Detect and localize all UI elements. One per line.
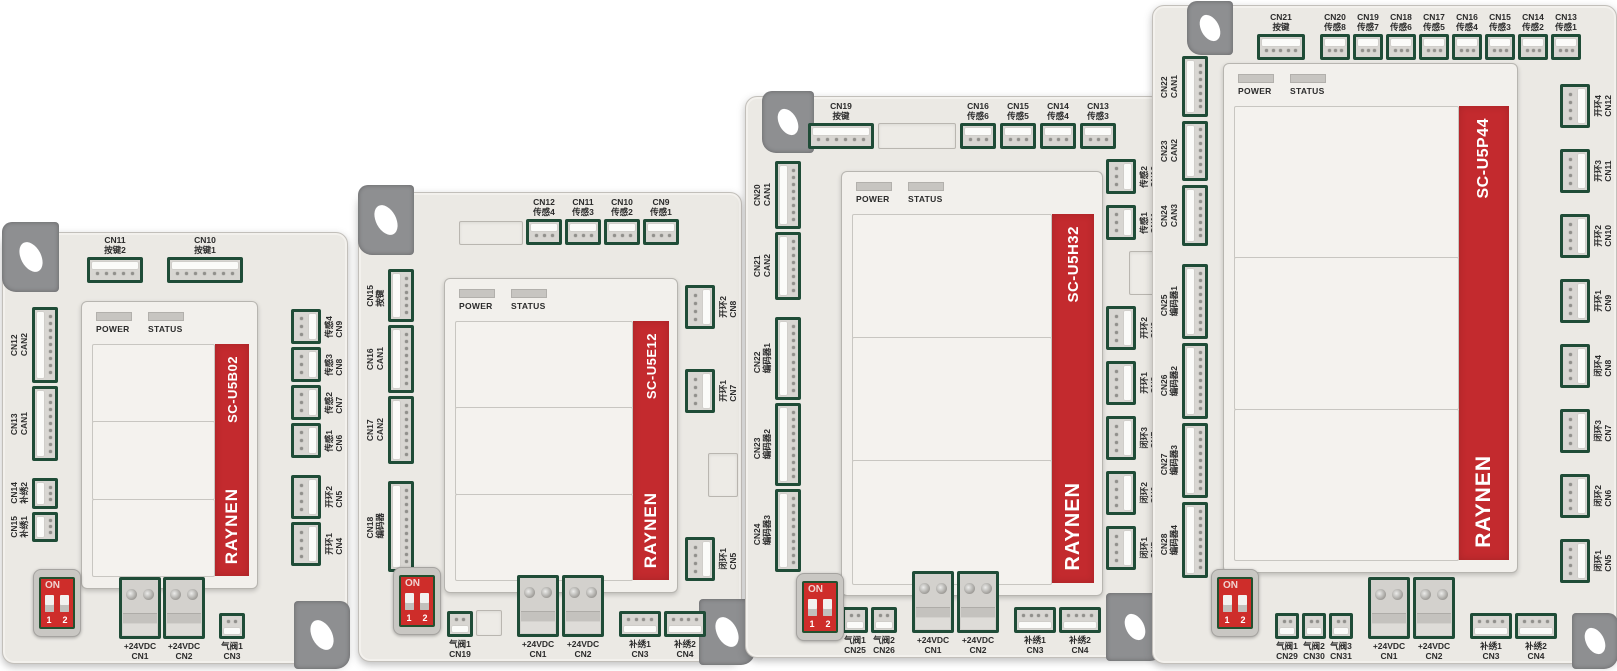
cover-section bbox=[92, 499, 215, 578]
pin-row bbox=[1020, 611, 1050, 620]
connector-id: CN26 bbox=[1159, 366, 1169, 396]
connector-label: CN18传感6 bbox=[1390, 12, 1412, 32]
connector-label: +24VDC bbox=[168, 641, 200, 651]
connector-id: CN19 bbox=[830, 101, 852, 111]
connector-id: CN27 bbox=[1159, 445, 1169, 475]
connector-key-strip bbox=[1358, 39, 1378, 46]
mounting-tab-top-left bbox=[358, 185, 414, 255]
connector-CN9 bbox=[643, 219, 679, 245]
pin-row bbox=[1425, 46, 1443, 55]
pin-row bbox=[297, 391, 306, 414]
connector-item-CN9: 开环2CN9 bbox=[1106, 306, 1159, 350]
dip-label-1: 1 bbox=[406, 614, 411, 623]
connector-id: CN8 bbox=[1603, 355, 1613, 377]
unpopulated-slot bbox=[878, 123, 956, 149]
cover-sections bbox=[1234, 106, 1459, 560]
connector-item-CN10: CN10传感2 bbox=[604, 197, 640, 245]
connector-id: CN2 bbox=[168, 651, 200, 661]
connector-key-strip bbox=[1187, 61, 1194, 112]
pin-row bbox=[1566, 155, 1575, 187]
status-led-label: STATUS bbox=[511, 301, 546, 311]
connector-label: 传感4CN9 bbox=[324, 316, 344, 338]
connector-CN7 bbox=[1106, 416, 1136, 460]
connector-id: CN4 bbox=[1069, 645, 1091, 655]
dip-label-2: 2 bbox=[63, 616, 68, 625]
connector-label: 传感3CN8 bbox=[324, 354, 344, 376]
connector-label: CN19传感7 bbox=[1357, 12, 1379, 32]
model-name: SC-U5E12 bbox=[644, 333, 659, 399]
product-lineup: POWERSTATUSSC-U5B02RAYNENCN11按键2CN10按键1C… bbox=[0, 0, 1617, 671]
cover-panel: POWERSTATUSSC-U5P44RAYNEN bbox=[1223, 63, 1518, 573]
connector-CN8 bbox=[291, 347, 321, 382]
mounting-hole bbox=[1120, 610, 1149, 643]
brand-logo: RAYNEN bbox=[1472, 455, 1496, 548]
connector-label: CN11按键2 bbox=[104, 235, 126, 255]
mounting-hole bbox=[1195, 11, 1224, 44]
pin-row bbox=[1196, 508, 1205, 572]
connector-key-strip bbox=[393, 486, 400, 567]
connector-label: 传感2 bbox=[611, 207, 633, 217]
connector-label: 开环1 bbox=[718, 380, 728, 402]
controller-board-sc-u5b02: POWERSTATUSSC-U5B02RAYNENCN11按键2CN10按键1C… bbox=[2, 232, 348, 664]
model-name: SC-U5P44 bbox=[1475, 118, 1493, 198]
connector-label: 编码器1 bbox=[1169, 286, 1179, 316]
connector-key-strip bbox=[1391, 39, 1411, 46]
connector-id: CN22 bbox=[752, 343, 762, 373]
connector-CN2-terminal bbox=[163, 577, 205, 639]
connector-label: 编码器 bbox=[375, 513, 385, 539]
status-led-group: POWERSTATUS bbox=[1238, 74, 1326, 96]
connector-label: 开环3CN11 bbox=[1593, 160, 1613, 182]
connector-item-CN8: 开环1CN8 bbox=[1106, 361, 1159, 405]
connector-key-strip bbox=[1187, 269, 1194, 335]
connector-label: CN14传感2 bbox=[1522, 12, 1544, 32]
connector-CN17 bbox=[388, 396, 414, 464]
connector-CN7 bbox=[685, 369, 715, 413]
bottom-connector-zone: 气阀1CN29气阀2CN30气阀3CN31+24VDCCN1+24VDCCN2补… bbox=[1275, 577, 1557, 661]
connector-item-CN3: 补绣1CN3 bbox=[1470, 613, 1512, 661]
bottom-connector-zone: +24VDCCN1+24VDCCN2气阀1CN3 bbox=[119, 577, 245, 661]
connector-label: CN13传感3 bbox=[1087, 101, 1109, 121]
connector-item-CN3: 气阀1CN3 bbox=[219, 613, 245, 661]
pin-row bbox=[297, 315, 306, 338]
bottom-connector-zone: 气阀1CN19+24VDCCN1+24VDCCN2补绣1CN3补绣2CN4 bbox=[447, 575, 706, 659]
connector-item-CN8: 开环2CN8 bbox=[685, 285, 738, 329]
connector-id: CN11 bbox=[104, 235, 126, 245]
pin-row bbox=[46, 392, 55, 456]
connector-label: 传感5 bbox=[1423, 22, 1445, 32]
status-led-block: STATUS bbox=[908, 182, 944, 204]
top-connector-zone: CN21按键CN20传感8CN19传感7CN18传感6CN17传感5CN16传感… bbox=[1257, 12, 1581, 60]
connector-CN13 bbox=[32, 386, 58, 462]
connector-item-CN4: 补绣2CN4 bbox=[1059, 607, 1101, 655]
pin-row bbox=[46, 518, 55, 537]
connector-item-CN5: 闭环1CN5 bbox=[1106, 526, 1159, 570]
connector-label: 气阀2CN30 bbox=[1303, 641, 1325, 661]
top-connector-zone: CN19按键CN16传感6CN15传感5CN14传感4CN13传感3 bbox=[808, 101, 1116, 149]
connector-label: CN15传感5 bbox=[1007, 101, 1029, 121]
connector-key-strip bbox=[1085, 128, 1111, 135]
connector-CN21 bbox=[1257, 34, 1305, 60]
power-led bbox=[1238, 74, 1274, 83]
connector-label: +24VDCCN1 bbox=[124, 641, 156, 661]
connector-label: 编码器1 bbox=[762, 343, 772, 373]
connector-CN28 bbox=[1182, 502, 1208, 578]
connector-item-CN12: 传感2CN12 bbox=[1106, 159, 1159, 194]
connector-label: CN15按键 bbox=[365, 285, 385, 307]
connector-CN26 bbox=[1182, 343, 1208, 419]
connector-item-CN28: CN28编码器4 bbox=[1159, 502, 1208, 578]
connector-key-strip bbox=[813, 128, 869, 135]
pin-row bbox=[1112, 422, 1121, 454]
connector-CN29 bbox=[1275, 613, 1299, 639]
connector-item-CN13: CN13传感3 bbox=[1080, 101, 1116, 149]
mounting-tab-bottom-right bbox=[1572, 613, 1617, 669]
status-led-group: POWERSTATUS bbox=[856, 182, 944, 204]
mounting-tab-top-left bbox=[762, 91, 814, 153]
connector-label: 开环4 bbox=[1593, 95, 1603, 117]
connector-label: 传感3 bbox=[572, 207, 594, 217]
cover-body: SC-U5B02RAYNEN bbox=[92, 344, 249, 576]
connector-id: CN23 bbox=[752, 429, 762, 459]
connector-key-strip bbox=[1124, 210, 1131, 235]
connector-label: 传感1 bbox=[1139, 212, 1149, 234]
connector-item-CN17: CN17传感5 bbox=[1419, 12, 1449, 60]
cover-body: SC-U5E12RAYNEN bbox=[455, 321, 669, 580]
cover-section bbox=[455, 494, 633, 582]
connector-key-strip bbox=[1578, 349, 1585, 383]
connector-label: 补绣2 bbox=[674, 639, 696, 649]
connector-CN1-terminal bbox=[1368, 577, 1410, 639]
dip-on-label: ON bbox=[405, 579, 420, 589]
connector-key-strip bbox=[1578, 89, 1585, 123]
connector-key-strip bbox=[393, 401, 400, 459]
mounting-hole bbox=[370, 201, 403, 239]
connector-label: CN24CAN3 bbox=[1159, 204, 1179, 227]
connector-label: 气阀1CN3 bbox=[221, 641, 243, 661]
connector-id: CN30 bbox=[1303, 651, 1325, 661]
connector-id: CN12 bbox=[533, 197, 555, 207]
dip-on-label: ON bbox=[1223, 581, 1238, 591]
connector-label: 气阀2CN26 bbox=[873, 635, 895, 655]
connector-item-CN30: 气阀2CN30 bbox=[1302, 613, 1326, 661]
connector-label: 编码器3 bbox=[1169, 445, 1179, 475]
connector-id: CN1 bbox=[124, 651, 156, 661]
connector-CN17 bbox=[1419, 34, 1449, 60]
connector-key-strip bbox=[1005, 128, 1031, 135]
pin-row bbox=[1281, 617, 1293, 626]
connector-CN2-terminal bbox=[957, 571, 999, 633]
screw-terminal bbox=[919, 583, 930, 594]
connector-item-CN7: 开环1CN7 bbox=[685, 369, 738, 413]
unpopulated-slot bbox=[476, 610, 502, 636]
screw-terminal bbox=[143, 589, 154, 600]
screw-terminal bbox=[1437, 589, 1448, 600]
mounting-hole bbox=[1580, 624, 1609, 657]
connector-key-strip bbox=[703, 374, 710, 408]
connector-item-CN24: CN24编码器3 bbox=[752, 489, 801, 572]
connector-label: 编码器3 bbox=[762, 515, 772, 545]
connector-CN4 bbox=[291, 522, 321, 566]
pin-row bbox=[1566, 285, 1575, 317]
connector-CN24 bbox=[1182, 185, 1208, 246]
connector-key-strip bbox=[1578, 479, 1585, 513]
connector-label: 传感4 bbox=[533, 207, 555, 217]
connector-item-CN1: +24VDCCN1 bbox=[912, 571, 954, 655]
pin-row bbox=[1566, 480, 1575, 512]
status-led-block: STATUS bbox=[1290, 74, 1326, 96]
pin-row bbox=[966, 135, 990, 144]
connector-label: 编码器2 bbox=[1169, 366, 1179, 396]
connector-key-strip bbox=[1578, 414, 1585, 448]
model-stripe: SC-U5E12RAYNEN bbox=[633, 321, 669, 580]
connector-label: CN13CAN1 bbox=[9, 412, 29, 435]
connector-key-strip bbox=[1457, 39, 1477, 46]
pin-row bbox=[1335, 617, 1347, 626]
connector-item-CN3: 补绣1CN3 bbox=[619, 611, 661, 659]
cover-sections bbox=[92, 344, 215, 576]
left-connector-zone: CN15按键CN16CAN1CN17CAN2CN18编码器 bbox=[365, 269, 414, 572]
connector-id: CN14 bbox=[1522, 12, 1544, 22]
screw-terminal bbox=[569, 587, 580, 598]
connector-item-CN22: CN22编码器1 bbox=[752, 317, 801, 400]
pin-row bbox=[1524, 46, 1542, 55]
connector-item-CN2: +24VDCCN2 bbox=[957, 571, 999, 655]
connector-id: CN24 bbox=[752, 515, 762, 545]
connector-label: 补绣1 bbox=[1480, 641, 1502, 651]
screw-terminal bbox=[524, 587, 535, 598]
connector-label: 开环2 bbox=[1139, 317, 1149, 339]
connector-label: 闭环1CN5 bbox=[718, 548, 738, 570]
connector-key-strip bbox=[37, 391, 44, 457]
connector-id: CN4 bbox=[674, 649, 696, 659]
screw-terminal bbox=[1375, 589, 1386, 600]
pin-row bbox=[297, 429, 306, 452]
status-led-group: POWERSTATUS bbox=[96, 312, 184, 334]
dip-sliders bbox=[45, 595, 69, 612]
connector-label: 按键1 bbox=[194, 245, 216, 255]
connector-label: CN23编码器2 bbox=[752, 429, 772, 459]
status-led-label: STATUS bbox=[1290, 86, 1325, 96]
connector-id: CN14 bbox=[9, 482, 19, 504]
connector-label: 传感1 bbox=[324, 430, 334, 452]
connector-CN19 bbox=[1353, 34, 1383, 60]
connector-item-CN10: 开环2CN10 bbox=[1560, 214, 1613, 258]
connector-label: 补绣2 bbox=[1069, 635, 1091, 645]
connector-label: 闭环4CN8 bbox=[1593, 355, 1613, 377]
connector-label: 开环1CN4 bbox=[324, 533, 344, 555]
dip-on-label: ON bbox=[808, 585, 823, 595]
cover-section bbox=[1234, 409, 1459, 562]
connector-label: 补绣1CN3 bbox=[1480, 641, 1502, 661]
dip-switch-body: ON12 bbox=[399, 575, 435, 627]
connector-CN6 bbox=[1106, 471, 1136, 515]
connector-item-CN13: CN13传感1 bbox=[1551, 12, 1581, 60]
connector-CN18 bbox=[388, 481, 414, 572]
connector-id: CN3 bbox=[1024, 645, 1046, 655]
connector-item-CN15: CN15传感5 bbox=[1000, 101, 1036, 149]
connector-label: 传感1CN6 bbox=[324, 430, 344, 452]
left-connector-zone: CN22CAN1CN23CAN2CN24CAN3CN25编码器1CN26编码器2… bbox=[1159, 56, 1208, 578]
dip-switch-body: ON12 bbox=[39, 577, 75, 629]
connector-label: 传感7 bbox=[1357, 22, 1379, 32]
connector-label: 传感6 bbox=[967, 111, 989, 121]
cover-section bbox=[852, 214, 1052, 339]
pin-row bbox=[814, 135, 868, 144]
dip-label-2: 2 bbox=[1241, 616, 1246, 625]
cover-panel: POWERSTATUSSC-U5B02RAYNEN bbox=[81, 301, 258, 589]
connector-label: 按键2 bbox=[104, 245, 126, 255]
connector-CN14 bbox=[32, 478, 58, 509]
mounting-hole bbox=[711, 613, 744, 651]
connector-item-CN20: CN20传感8 bbox=[1320, 12, 1350, 60]
power-led-block: POWER bbox=[459, 289, 495, 311]
dip-sliders bbox=[405, 593, 429, 610]
connector-id: CN20 bbox=[1324, 12, 1346, 22]
connector-CN26 bbox=[871, 607, 897, 633]
connector-label: 开环3 bbox=[1593, 160, 1603, 182]
connector-label: 传感3 bbox=[1087, 111, 1109, 121]
connector-label: 闭环3 bbox=[1593, 420, 1603, 442]
connector-item-CN5: 开环2CN5 bbox=[291, 475, 344, 519]
pin-row bbox=[1476, 617, 1506, 626]
pin-row bbox=[789, 495, 798, 566]
connector-label: 开环1 bbox=[1139, 372, 1149, 394]
pin-row bbox=[46, 313, 55, 377]
connector-id: CN13 bbox=[1555, 12, 1577, 22]
connector-label: +24VDC bbox=[1373, 641, 1405, 651]
dip-position-labels: 12 bbox=[809, 620, 830, 629]
dip-slider-1 bbox=[1223, 595, 1232, 612]
connector-CN9 bbox=[1106, 306, 1136, 350]
connector-label: CN10传感2 bbox=[611, 197, 633, 217]
connector-label: CN26编码器2 bbox=[1159, 366, 1179, 396]
connector-CN8 bbox=[1560, 344, 1590, 388]
connector-label: +24VDCCN2 bbox=[567, 639, 599, 659]
connector-id: CN5 bbox=[1603, 550, 1613, 572]
pin-row bbox=[670, 615, 700, 624]
dip-label-2: 2 bbox=[826, 620, 831, 629]
status-led-label: STATUS bbox=[148, 324, 183, 334]
connector-item-CN7: 闭环3CN7 bbox=[1106, 416, 1159, 460]
connector-key-strip bbox=[624, 626, 656, 632]
connector-label: CN13传感1 bbox=[1555, 12, 1577, 32]
connector-id: CN21 bbox=[752, 254, 762, 277]
connector-id: CN19 bbox=[449, 649, 471, 659]
pin-row bbox=[1308, 617, 1320, 626]
connector-CN9 bbox=[1560, 279, 1590, 323]
connector-item-CN24: CN24CAN3 bbox=[1159, 185, 1208, 246]
dip-slider-1 bbox=[45, 595, 54, 612]
status-led-label: STATUS bbox=[908, 194, 943, 204]
connector-item-CN15: CN15补绣1 bbox=[9, 512, 58, 543]
pin-row bbox=[1458, 46, 1476, 55]
connector-label: CAN2 bbox=[762, 254, 772, 277]
connector-label: CN11传感3 bbox=[572, 197, 594, 217]
connector-item-CN1: +24VDCCN1 bbox=[517, 575, 559, 659]
status-led bbox=[511, 289, 547, 298]
connector-CN23 bbox=[1182, 121, 1208, 182]
pin-row bbox=[610, 231, 634, 240]
connector-label: 开环1CN9 bbox=[1593, 290, 1613, 312]
connector-id: CN8 bbox=[728, 296, 738, 318]
connector-CN15 bbox=[388, 269, 414, 322]
connector-CN5 bbox=[1106, 526, 1136, 570]
power-led bbox=[856, 182, 892, 191]
connector-CN16 bbox=[960, 123, 996, 149]
pin-row bbox=[297, 353, 306, 376]
connector-key-strip bbox=[780, 494, 787, 567]
connector-label: +24VDCCN2 bbox=[962, 635, 994, 655]
connector-item-CN11: 开环3CN11 bbox=[1560, 149, 1613, 193]
connector-label: 传感1 bbox=[650, 207, 672, 217]
connector-id: CN3 bbox=[629, 649, 651, 659]
connector-id: CN13 bbox=[1087, 101, 1109, 111]
connector-key-strip bbox=[1520, 628, 1552, 634]
pin-row bbox=[1086, 135, 1110, 144]
connector-label: +24VDCCN2 bbox=[1418, 641, 1450, 661]
brand-logo: RAYNEN bbox=[641, 492, 661, 568]
connector-CN3 bbox=[1470, 613, 1512, 639]
pin-row bbox=[1566, 545, 1575, 577]
connector-CN10 bbox=[604, 219, 640, 245]
connector-label: 按键 bbox=[375, 285, 385, 307]
connector-item-CN11: CN11传感3 bbox=[565, 197, 601, 245]
connector-CN13 bbox=[1080, 123, 1116, 149]
cover-section bbox=[92, 421, 215, 500]
right-connector-zone: 开环2CN8开环1CN7闭环1CN5 bbox=[685, 285, 738, 581]
power-led-block: POWER bbox=[96, 312, 132, 334]
connector-id: CN16 bbox=[967, 101, 989, 111]
connector-key-strip bbox=[393, 274, 400, 317]
connector-label: 编码器2 bbox=[762, 429, 772, 459]
connector-key-strip bbox=[1578, 219, 1585, 253]
pin-row bbox=[1112, 312, 1121, 344]
power-led-label: POWER bbox=[856, 194, 890, 204]
connector-item-CN8: 闭环4CN8 bbox=[1560, 344, 1613, 388]
connector-id: CN12 bbox=[1603, 95, 1613, 117]
connector-key-strip bbox=[1187, 190, 1194, 241]
connector-label: 气阀1 bbox=[844, 635, 866, 645]
connector-label: 开环2CN10 bbox=[1593, 225, 1613, 247]
pin-row bbox=[1392, 46, 1410, 55]
connector-id: CN29 bbox=[1276, 651, 1298, 661]
connector-CN4 bbox=[1515, 613, 1557, 639]
connector-item-CN4: 补绣2CN4 bbox=[1515, 613, 1557, 661]
brand-logo: RAYNEN bbox=[222, 488, 242, 564]
connector-key-strip bbox=[780, 166, 787, 224]
connector-label: CN27编码器3 bbox=[1159, 445, 1179, 475]
pin-row bbox=[1566, 350, 1575, 382]
connector-key-strip bbox=[780, 237, 787, 295]
connector-id: CN21 bbox=[1270, 12, 1292, 22]
connector-item-CN12: CN12传感4 bbox=[526, 197, 562, 245]
connector-key-strip bbox=[570, 224, 596, 231]
connector-key-strip bbox=[1424, 39, 1444, 46]
pin-row bbox=[1196, 429, 1205, 493]
mounting-hole bbox=[14, 238, 47, 276]
connector-label: 闭环2CN6 bbox=[1593, 485, 1613, 507]
connector-id: CN12 bbox=[9, 333, 19, 356]
connector-key-strip bbox=[1187, 348, 1194, 414]
pin-row bbox=[1046, 135, 1070, 144]
connector-key-strip bbox=[1523, 39, 1543, 46]
cover-section bbox=[455, 407, 633, 495]
connector-label: CAN2 bbox=[1169, 139, 1179, 162]
connector-id: CN7 bbox=[728, 380, 738, 402]
dip-on-label: ON bbox=[45, 581, 60, 591]
connector-item-CN7: 闭环3CN7 bbox=[1560, 409, 1613, 453]
